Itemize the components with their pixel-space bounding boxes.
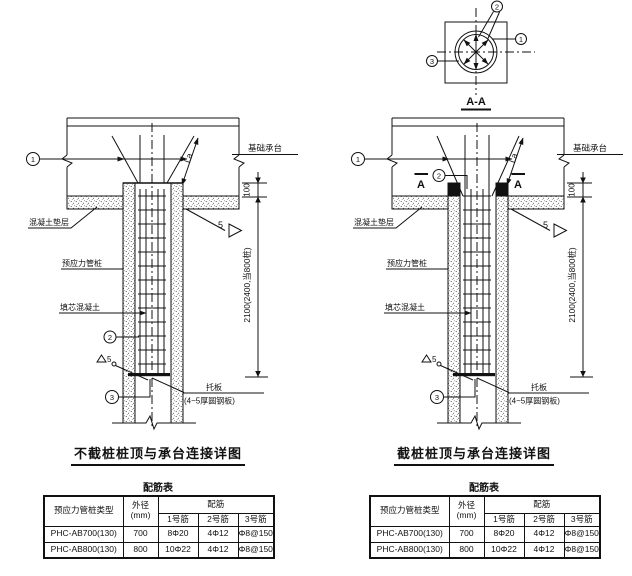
- col-header-diameter-l2: (mm): [124, 511, 158, 521]
- rebar-table-right: 配筋表 预应力管桩类型 外径(mm) 配筋 1号筋 2号筋 3号筋 PHC-AB…: [369, 479, 599, 559]
- col-header-diameter-l2: (mm): [450, 511, 484, 521]
- callout-1-number: 1: [31, 155, 35, 164]
- cell-rebar3: Φ8@150: [564, 526, 600, 542]
- rebar-table-left: 配筋表 预应力管桩类型 外径(mm) 配筋 1号筋 2号筋 3号筋 PHC-AB…: [43, 479, 273, 559]
- cell-rebar3: Φ8@150: [564, 542, 600, 558]
- col-header-diameter: 外径(mm): [123, 496, 158, 526]
- right-drawing: 2 1 3 A-A La 1 2 A A: [352, 1, 624, 429]
- col-header-pile-type: 预应力管桩类型: [370, 496, 449, 526]
- label-bearing-plate-note: (4~5厚圆钢板): [509, 396, 560, 406]
- cell-pile-type: PHC-AB700(130): [370, 526, 449, 542]
- section-view: 2 1 3 A-A: [427, 1, 536, 110]
- dim-fill-depth: 2100(2400,当800桩): [242, 247, 252, 322]
- col-header-rebar3: 3号筋: [564, 513, 600, 526]
- cell-diameter: 800: [123, 542, 158, 558]
- label-pipe-pile: 预应力管桩: [387, 258, 427, 268]
- dim-embed-depth: 100: [243, 183, 252, 197]
- cell-pile-type: PHC-AB800(130): [44, 542, 123, 558]
- label-core-concrete: 填芯混凝土: [60, 302, 100, 312]
- break-marks: [387, 155, 569, 167]
- section-callout-1-number: 1: [519, 35, 523, 44]
- label-bearing-plate: 托板: [206, 382, 222, 392]
- col-header-pile-type: 预应力管桩类型: [44, 496, 123, 526]
- col-header-rebar1: 1号筋: [158, 513, 198, 526]
- cell-diameter: 800: [449, 542, 484, 558]
- section-mark-right: A: [514, 179, 522, 191]
- cad-sheet: La 1 基础承台 混凝土垫层 预应力管桩 填芯混凝土 2 5: [0, 0, 632, 576]
- section-callout-2-number: 2: [495, 3, 499, 12]
- cell-rebar3: Φ8@150: [238, 526, 274, 542]
- cell-rebar1: 10Φ22: [484, 542, 524, 558]
- callout-3-number: 3: [110, 393, 114, 402]
- dim-fill-depth: 2100(2400,当800桩): [567, 247, 577, 322]
- cushion-left: [392, 196, 448, 209]
- cell-rebar2: 4Φ12: [198, 542, 238, 558]
- weld-all-around-icon: [112, 362, 116, 366]
- section-title: A-A: [466, 96, 486, 108]
- weld-flag-icon: [229, 224, 242, 237]
- section-spoke: [476, 52, 488, 64]
- cell-diameter: 700: [123, 526, 158, 542]
- callout-2-number: 2: [108, 333, 112, 342]
- left-figure-title-text: 不截桩桩顶与承台连接详图: [71, 443, 245, 466]
- weld-all-around-icon: [437, 362, 441, 366]
- pile-wall-left: [123, 183, 135, 423]
- cell-rebar1: 8Φ20: [158, 526, 198, 542]
- col-header-rebar2: 2号筋: [524, 513, 564, 526]
- table-row: PHC-AB700(130) 700 8Φ20 4Φ12 Φ8@150: [370, 526, 600, 542]
- cell-rebar1: 8Φ20: [484, 526, 524, 542]
- cell-rebar2: 4Φ12: [198, 526, 238, 542]
- col-header-rebar-group: 配筋: [158, 496, 274, 513]
- col-header-rebar1: 1号筋: [484, 513, 524, 526]
- right-figure-title: 截桩桩顶与承台连接详图: [356, 443, 592, 466]
- cut-pile-top-left: [448, 183, 460, 196]
- left-figure-title: 不截桩桩顶与承台连接详图: [40, 443, 276, 466]
- weld-flag-size: 5: [218, 220, 223, 230]
- weld-flag-icon: [554, 224, 567, 237]
- cushion-right: [508, 196, 564, 209]
- weld-triangle-icon: [97, 355, 106, 362]
- col-header-diameter: 外径(mm): [449, 496, 484, 526]
- weld-flag-size: 5: [543, 220, 548, 230]
- cell-rebar2: 4Φ12: [524, 526, 564, 542]
- label-core-concrete: 填芯混凝土: [385, 302, 425, 312]
- col-header-rebar2: 2号筋: [198, 513, 238, 526]
- section-spoke: [464, 52, 476, 64]
- cushion-right: [183, 196, 239, 209]
- cap-top-lines: [392, 118, 564, 209]
- rebar-table-title: 配筋表: [43, 479, 273, 494]
- label-bearing-plate: 托板: [531, 382, 547, 392]
- label-bearing-plate-note: (4~5厚圆钢板): [184, 396, 235, 406]
- drawing-canvas: La 1 基础承台 混凝土垫层 预应力管桩 填芯混凝土 2 5: [0, 0, 632, 480]
- rebar-table: 预应力管桩类型 外径(mm) 配筋 1号筋 2号筋 3号筋 PHC-AB700(…: [369, 495, 601, 559]
- cell-pile-type: PHC-AB800(130): [370, 542, 449, 558]
- col-header-rebar3: 3号筋: [238, 513, 274, 526]
- cell-rebar1: 10Φ22: [158, 542, 198, 558]
- label-foundation-cap: 基础承台: [573, 143, 607, 153]
- break-marks: [62, 155, 244, 167]
- right-figure-title-text: 截桩桩顶与承台连接详图: [394, 443, 554, 466]
- label-pipe-pile: 预应力管桩: [62, 258, 102, 268]
- section-mark-left: A: [417, 179, 425, 191]
- dim-arrow: [255, 371, 261, 377]
- dim-embed-depth: 100: [568, 183, 577, 197]
- section-spoke: [476, 40, 488, 52]
- section-callout-3-number: 3: [430, 57, 434, 66]
- cell-rebar2: 4Φ12: [524, 542, 564, 558]
- cell-diameter: 700: [449, 526, 484, 542]
- rebar-table-title: 配筋表: [369, 479, 599, 494]
- rebar-table: 预应力管桩类型 外径(mm) 配筋 1号筋 2号筋 3号筋 PHC-AB700(…: [43, 495, 275, 559]
- table-row: PHC-AB800(130) 800 10Φ22 4Φ12 Φ8@150: [44, 542, 274, 558]
- cap-top-lines: [67, 118, 239, 209]
- section-centerlines: [437, 8, 535, 95]
- label-concrete-cushion: 混凝土垫层: [354, 217, 394, 227]
- cushion-left: [67, 196, 123, 209]
- section-spoke: [464, 40, 476, 52]
- label-foundation-cap: 基础承台: [248, 143, 282, 153]
- label-concrete-cushion: 混凝土垫层: [29, 217, 69, 227]
- cell-pile-type: PHC-AB700(130): [44, 526, 123, 542]
- cut-pile-top-right: [496, 183, 508, 196]
- weld-size-label: 5: [432, 355, 437, 364]
- weld-triangle-icon: [422, 355, 431, 362]
- col-header-rebar-group: 配筋: [484, 496, 600, 513]
- dim-arrow: [580, 371, 586, 377]
- pile-wall-left: [448, 183, 460, 423]
- cell-rebar3: Φ8@150: [238, 542, 274, 558]
- weld-size-label: 5: [107, 355, 112, 364]
- left-drawing: La 1 基础承台 混凝土垫层 预应力管桩 填芯混凝土 2 5: [27, 118, 299, 429]
- table-row: PHC-AB700(130) 700 8Φ20 4Φ12 Φ8@150: [44, 526, 274, 542]
- callout-1-number: 1: [356, 155, 360, 164]
- callout-2-number: 2: [437, 172, 441, 181]
- table-row: PHC-AB800(130) 800 10Φ22 4Φ12 Φ8@150: [370, 542, 600, 558]
- callout-3-number: 3: [435, 393, 439, 402]
